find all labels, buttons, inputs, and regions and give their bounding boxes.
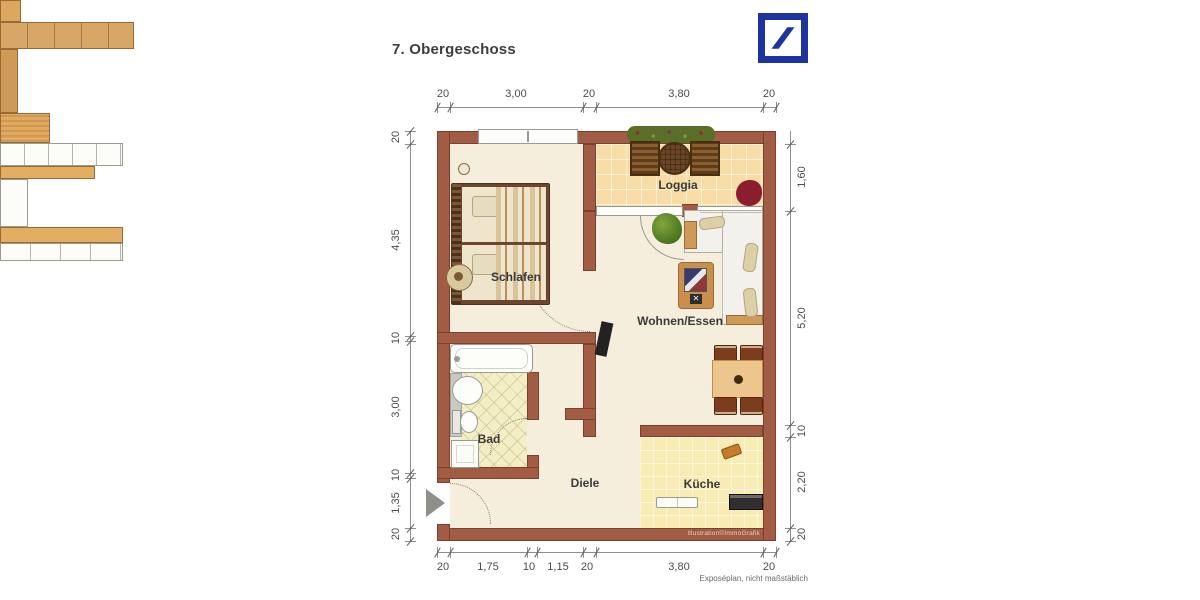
sofa-seam-1 [700,212,762,213]
living-plant [652,213,682,244]
floorplan-page: 7. Obergeschoss [0,0,1200,600]
dim-top-2: 20 [571,88,607,100]
scale-disclaimer: Exposéplan, nicht maßstäblich [640,574,808,583]
dim-left-1: 4,35 [390,222,402,258]
wall-right [763,131,776,541]
room-label-loggia: Loggia [658,178,697,192]
dim-right-2: 10 [796,413,808,449]
wall-schlafen-loggia [583,144,596,211]
room-label-schlafen: Schlafen [491,270,541,284]
dim-bottom-6: 20 [751,561,787,573]
coffee-table: ✕ [678,262,714,309]
kitchen-tall-cabinet [0,179,28,227]
window-mullion [527,131,529,142]
room-label-wohnen-essen: Wohnen/Essen [637,314,723,328]
dim-bottom-4: 20 [569,561,605,573]
wall-bad-bottom [437,467,539,479]
dim-top-3: 3,80 [661,88,697,100]
deutsche-bank-logo-icon [758,13,808,63]
wardrobe-schlafen [0,22,134,49]
logo-slash-icon [765,20,801,56]
bedside-lamp-icon [454,272,463,281]
washing-machine-lid [456,445,474,463]
table-ornament-icon: ✕ [690,294,702,304]
wall-left-lower [437,524,450,541]
dim-left-3: 3,00 [390,389,402,425]
dimension-chain-bottom [437,546,776,559]
dim-top-0: 20 [425,88,461,100]
sofa-armrest-bottom [726,315,763,325]
wall-schlafen-wohnen-upper [583,211,596,271]
dim-right-3: 2,20 [796,464,808,500]
bathtub-faucet-icon [454,356,460,362]
loggia-table [658,142,691,175]
wall-stub-diele [565,408,596,420]
dining-chair-3 [714,397,737,415]
tv-board [0,49,18,113]
lamp-icon [458,163,470,175]
washing-machine [451,440,479,468]
bedside-table [446,264,473,291]
dim-left-0: 20 [390,119,402,155]
kitchen-stove [729,494,763,510]
dining-chair-4 [740,397,763,415]
dim-top-4: 20 [751,88,787,100]
dim-top-1: 3,00 [498,88,534,100]
kitchen-counter-top [0,166,95,179]
kitchen-upper-cabinets [0,143,123,166]
kitchen-counter-bottom [0,227,123,243]
illustration-credit: Illustration©ImmoGrafik [648,530,760,537]
dim-bottom-0: 20 [425,561,461,573]
wall-corridor-wohnen [583,344,596,437]
pillow-1 [472,196,498,217]
loggia-plant [736,180,762,206]
dim-bottom-1: 1,75 [470,561,506,573]
dimension-chain-left [404,131,417,541]
wall-kueche [640,425,763,437]
room-label-bad: Bad [478,432,501,446]
room-label-diele: Diele [571,476,600,490]
dim-right-1: 5,20 [796,300,808,336]
kitchen-lower-cabinets [0,243,123,261]
sofa-armrest-left [684,221,697,249]
toilet-bowl [460,411,478,433]
sofa-seam-2 [722,252,723,315]
duvet-1 [496,187,546,242]
loggia-chair-left [630,141,660,176]
wall-left-upper [437,131,450,483]
dim-right-4: 20 [796,516,808,552]
dimension-chain-top [437,101,776,114]
dim-right-0: 1,60 [796,159,808,195]
page-title: 7. Obergeschoss [392,41,516,58]
dim-bottom-5: 3,80 [661,561,697,573]
wall-bad-right-upper [527,372,539,420]
entrance-arrow-icon [426,489,445,517]
kitchen-sink [656,497,698,508]
dim-left-6: 20 [390,516,402,552]
magazines [684,268,707,292]
wall-schlafen-bottom [437,332,596,344]
bathtub-inner [455,348,528,369]
table-centerpiece-icon [734,375,743,384]
wardrobe-corridor [0,113,50,143]
logo-inner-square [765,20,801,56]
dim-left-2: 10 [390,320,402,356]
bathtub [450,344,533,373]
dining-table [712,360,763,398]
room-label-kueche: Küche [684,477,721,491]
loggia-chair-right [690,141,720,176]
bath-sink [452,376,483,405]
nightstand-top [0,0,21,22]
sink-divider [677,498,678,507]
